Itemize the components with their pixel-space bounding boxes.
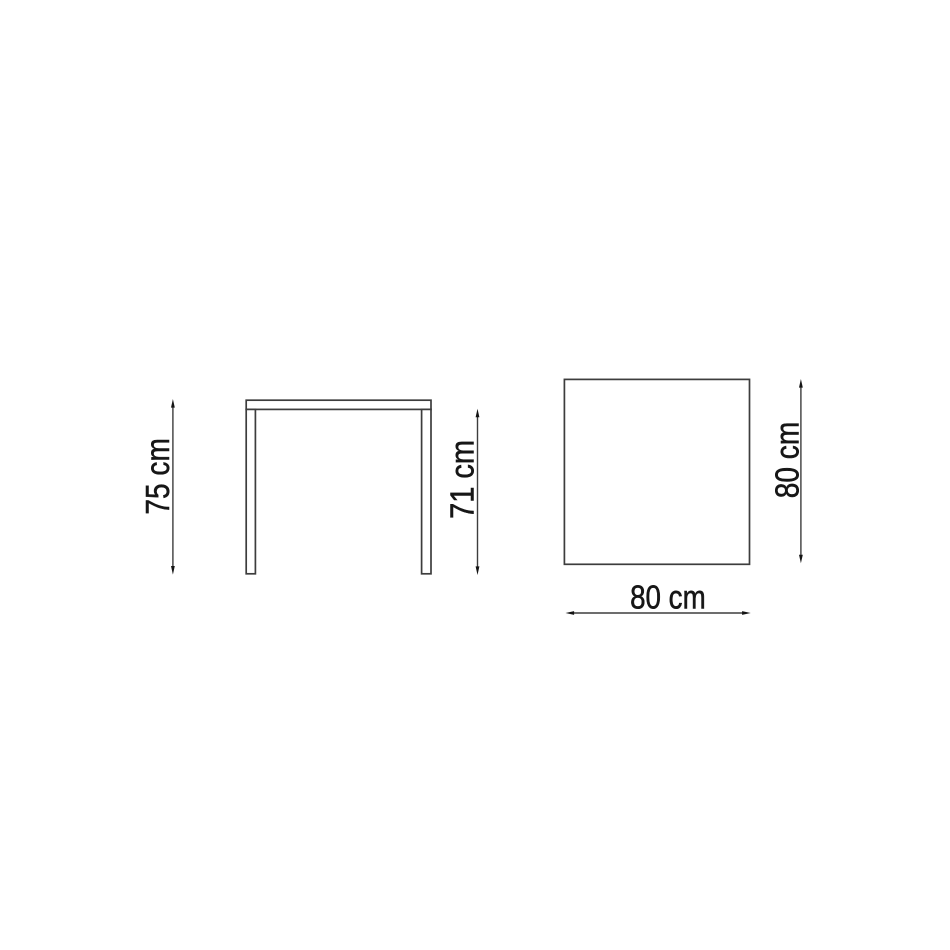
svg-text:71 cm: 71 cm xyxy=(444,440,481,519)
svg-text:75 cm: 75 cm xyxy=(140,438,177,515)
svg-text:80 cm: 80 cm xyxy=(630,580,706,617)
svg-text:80 cm: 80 cm xyxy=(769,422,806,499)
